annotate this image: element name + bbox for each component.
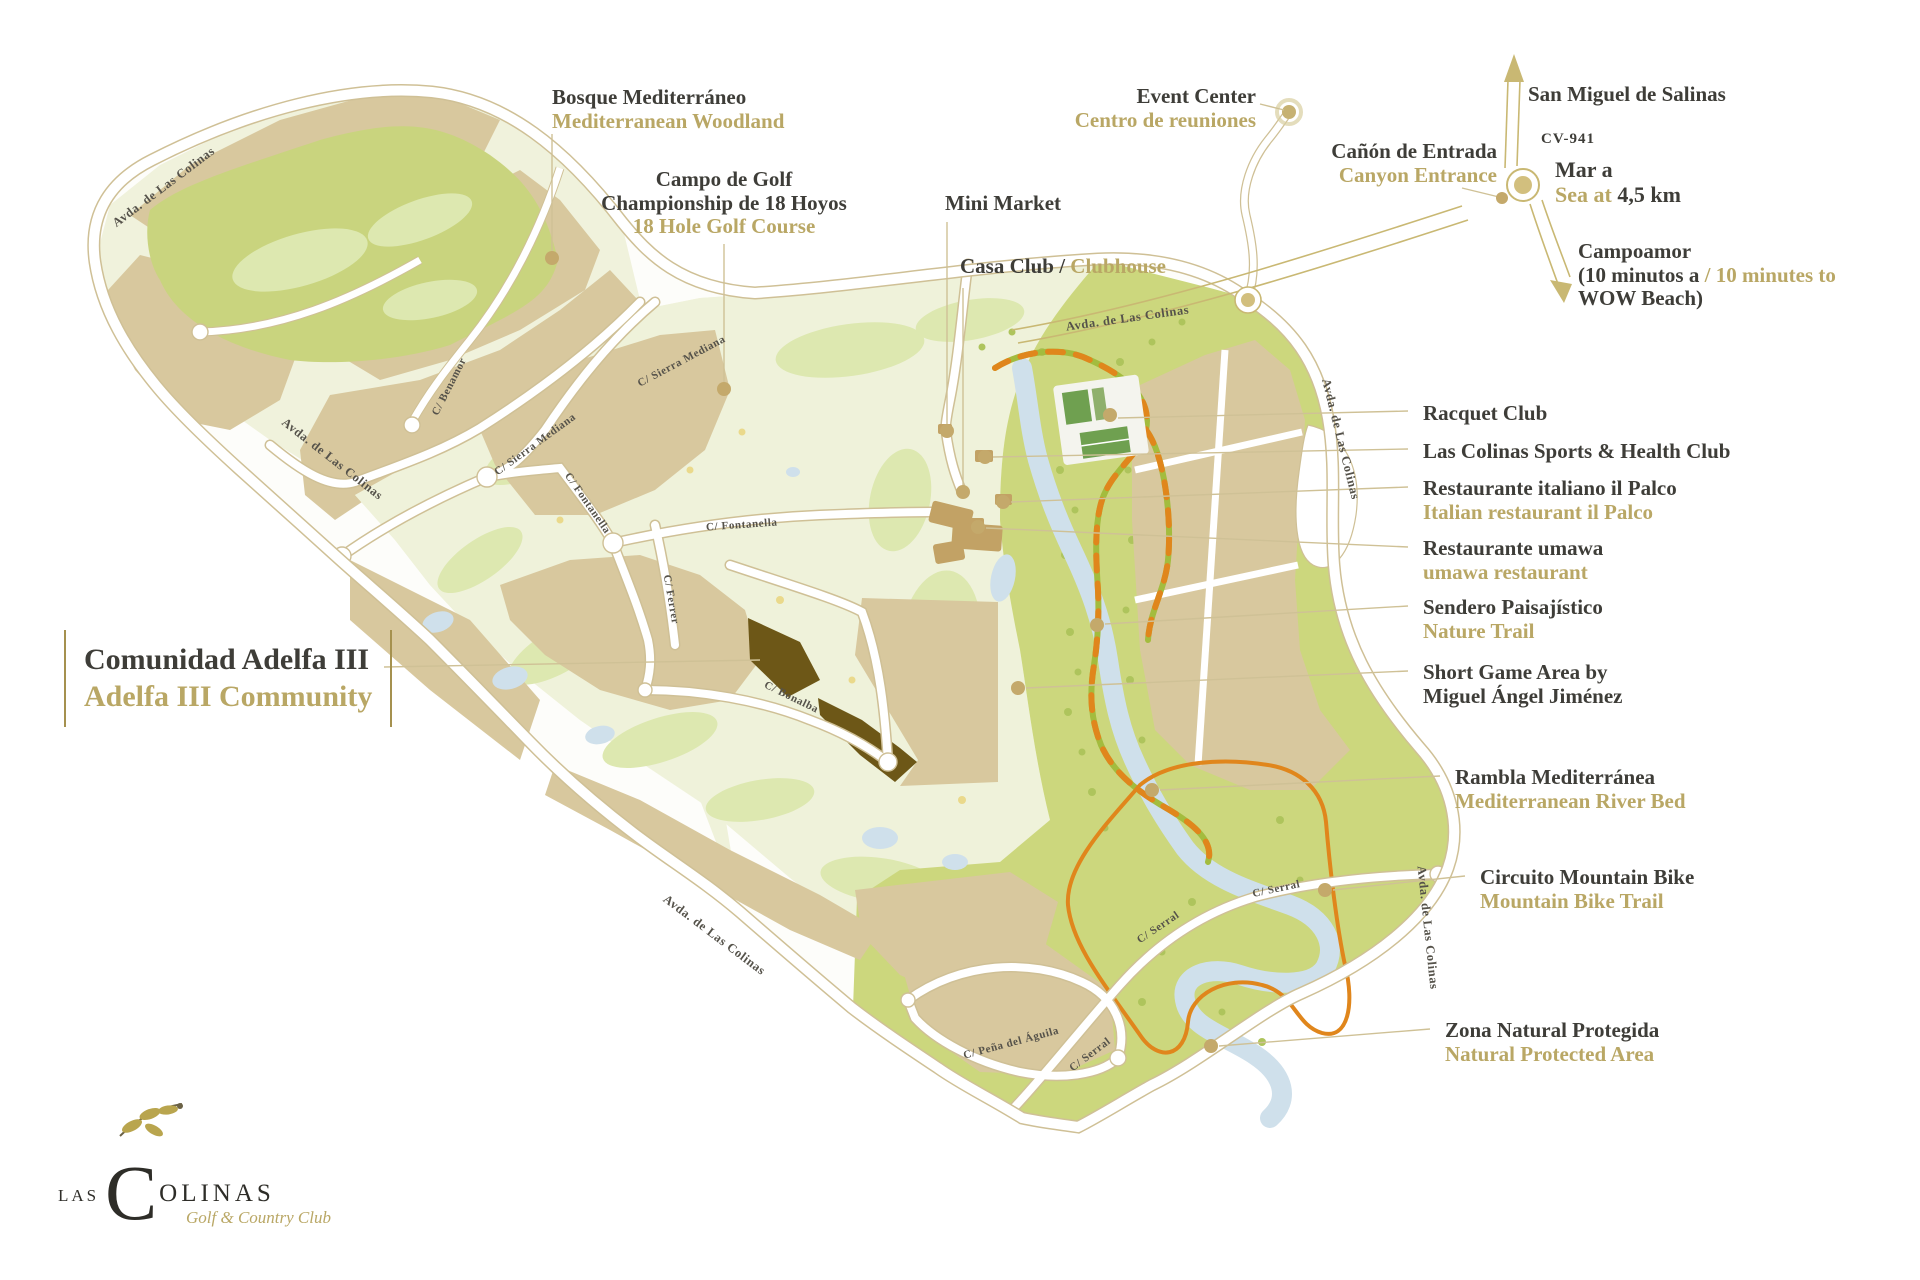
il-palco-subtitle: Italian restaurant il Palco	[1423, 501, 1677, 525]
label-mountain-bike: Circuito Mountain Bike Mountain Bike Tra…	[1480, 866, 1694, 913]
label-short-game-area: Short Game Area by Miguel Ángel Jiménez	[1423, 661, 1622, 708]
label-sendero: Sendero Paisajístico Nature Trail	[1423, 596, 1603, 643]
sea-subtitle: Sea at	[1555, 182, 1617, 207]
sports-club-title: Las Colinas Sports & Health Club	[1423, 439, 1730, 463]
canyon-title: Cañón de Entrada	[1297, 140, 1497, 164]
label-casa-club: Casa Club / Clubhouse	[960, 255, 1166, 279]
label-sea-distance: Mar a Sea at 4,5 km	[1555, 158, 1681, 207]
umawa-subtitle: umawa restaurant	[1423, 561, 1603, 585]
sea-distance-value: 4,5 km	[1617, 182, 1681, 207]
mountain-bike-subtitle: Mountain Bike Trail	[1480, 890, 1694, 914]
label-event-center: Event Center Centro de reuniones	[1006, 85, 1256, 132]
rambla-title: Rambla Mediterránea	[1455, 765, 1655, 789]
mountain-bike-title: Circuito Mountain Bike	[1480, 865, 1694, 889]
logo-initial-c: C	[105, 1149, 157, 1236]
bosque-subtitle: Mediterranean Woodland	[552, 110, 784, 134]
logo-word-olinas: OLINAS	[159, 1180, 275, 1207]
san-miguel-title: San Miguel de Salinas	[1528, 82, 1726, 106]
canyon-subtitle: Canyon Entrance	[1297, 164, 1497, 188]
campoamor-line3: WOW Beach)	[1578, 287, 1836, 311]
racquet-club-title: Racquet Club	[1423, 401, 1547, 425]
campoamor-line2-gold: / 10 minutes to	[1705, 263, 1836, 287]
sendero-subtitle: Nature Trail	[1423, 620, 1603, 644]
adelfa-subtitle: Adelfa III Community	[84, 679, 372, 716]
sendero-title: Sendero Paisajístico	[1423, 595, 1603, 619]
label-canyon-entrance: Cañón de Entrada Canyon Entrance	[1297, 140, 1497, 187]
event-center-subtitle: Centro de reuniones	[1006, 109, 1256, 133]
label-comunidad-adelfa: Comunidad Adelfa III Adelfa III Communit…	[64, 630, 392, 727]
casa-club-title: Casa Club /	[960, 254, 1070, 278]
south-arrow	[1550, 280, 1572, 303]
resort-map-page: Avda. de Las Colinas Avda. de Las Colina…	[0, 0, 1920, 1280]
label-rambla: Rambla Mediterránea Mediterranean River …	[1455, 766, 1686, 813]
sea-title: Mar a	[1555, 158, 1681, 183]
umawa-title: Restaurante umawa	[1423, 536, 1603, 560]
logo-word-las: LAS	[58, 1186, 99, 1205]
cv941-title: CV-941	[1541, 131, 1595, 147]
event-center-title: Event Center	[1006, 85, 1256, 109]
mini-market-title: Mini Market	[945, 191, 1061, 215]
campo-line2: Championship de 18 Hoyos	[601, 192, 847, 216]
campoamor-title: Campoamor	[1578, 240, 1836, 264]
casa-club-subtitle: Clubhouse	[1070, 254, 1166, 278]
rambla-subtitle: Mediterranean River Bed	[1455, 790, 1686, 814]
il-palco-title: Restaurante italiano il Palco	[1423, 476, 1677, 500]
zona-natural-title: Zona Natural Protegida	[1445, 1018, 1659, 1042]
label-cv941: CV-941	[1541, 131, 1595, 148]
label-campo-de-golf: Campo de Golf Championship de 18 Hoyos 1…	[601, 168, 847, 239]
short-game-title: Short Game Area by	[1423, 661, 1622, 685]
label-san-miguel: San Miguel de Salinas	[1528, 83, 1726, 107]
campo-title: Campo de Golf	[601, 168, 847, 192]
las-colinas-logo: LASCOLINAS Golf & Country Club	[58, 1096, 378, 1246]
label-bosque-mediterraneo: Bosque Mediterráneo Mediterranean Woodla…	[552, 86, 784, 133]
label-il-palco: Restaurante italiano il Palco Italian re…	[1423, 477, 1677, 524]
short-game-line2: Miguel Ángel Jiménez	[1423, 685, 1622, 709]
bosque-title: Bosque Mediterráneo	[552, 85, 746, 109]
adelfa-title: Comunidad Adelfa III	[84, 643, 369, 676]
label-campoamor: Campoamor (10 minutos a / 10 minutes to …	[1578, 240, 1836, 311]
olive-branch-icon	[110, 1096, 190, 1148]
label-sports-health-club: Las Colinas Sports & Health Club	[1423, 440, 1730, 464]
north-arrow	[1504, 54, 1524, 82]
zona-natural-subtitle: Natural Protected Area	[1445, 1043, 1659, 1067]
campoamor-line2-black: (10 minutos a	[1578, 263, 1705, 287]
label-umawa: Restaurante umawa umawa restaurant	[1423, 537, 1603, 584]
campo-subtitle: 18 Hole Golf Course	[601, 215, 847, 239]
label-zona-natural: Zona Natural Protegida Natural Protected…	[1445, 1019, 1659, 1066]
label-racquet-club: Racquet Club	[1423, 402, 1547, 426]
label-mini-market: Mini Market	[945, 192, 1061, 216]
logo-subtitle: Golf & Country Club	[186, 1208, 331, 1228]
racquet-club-courts	[1053, 374, 1149, 465]
